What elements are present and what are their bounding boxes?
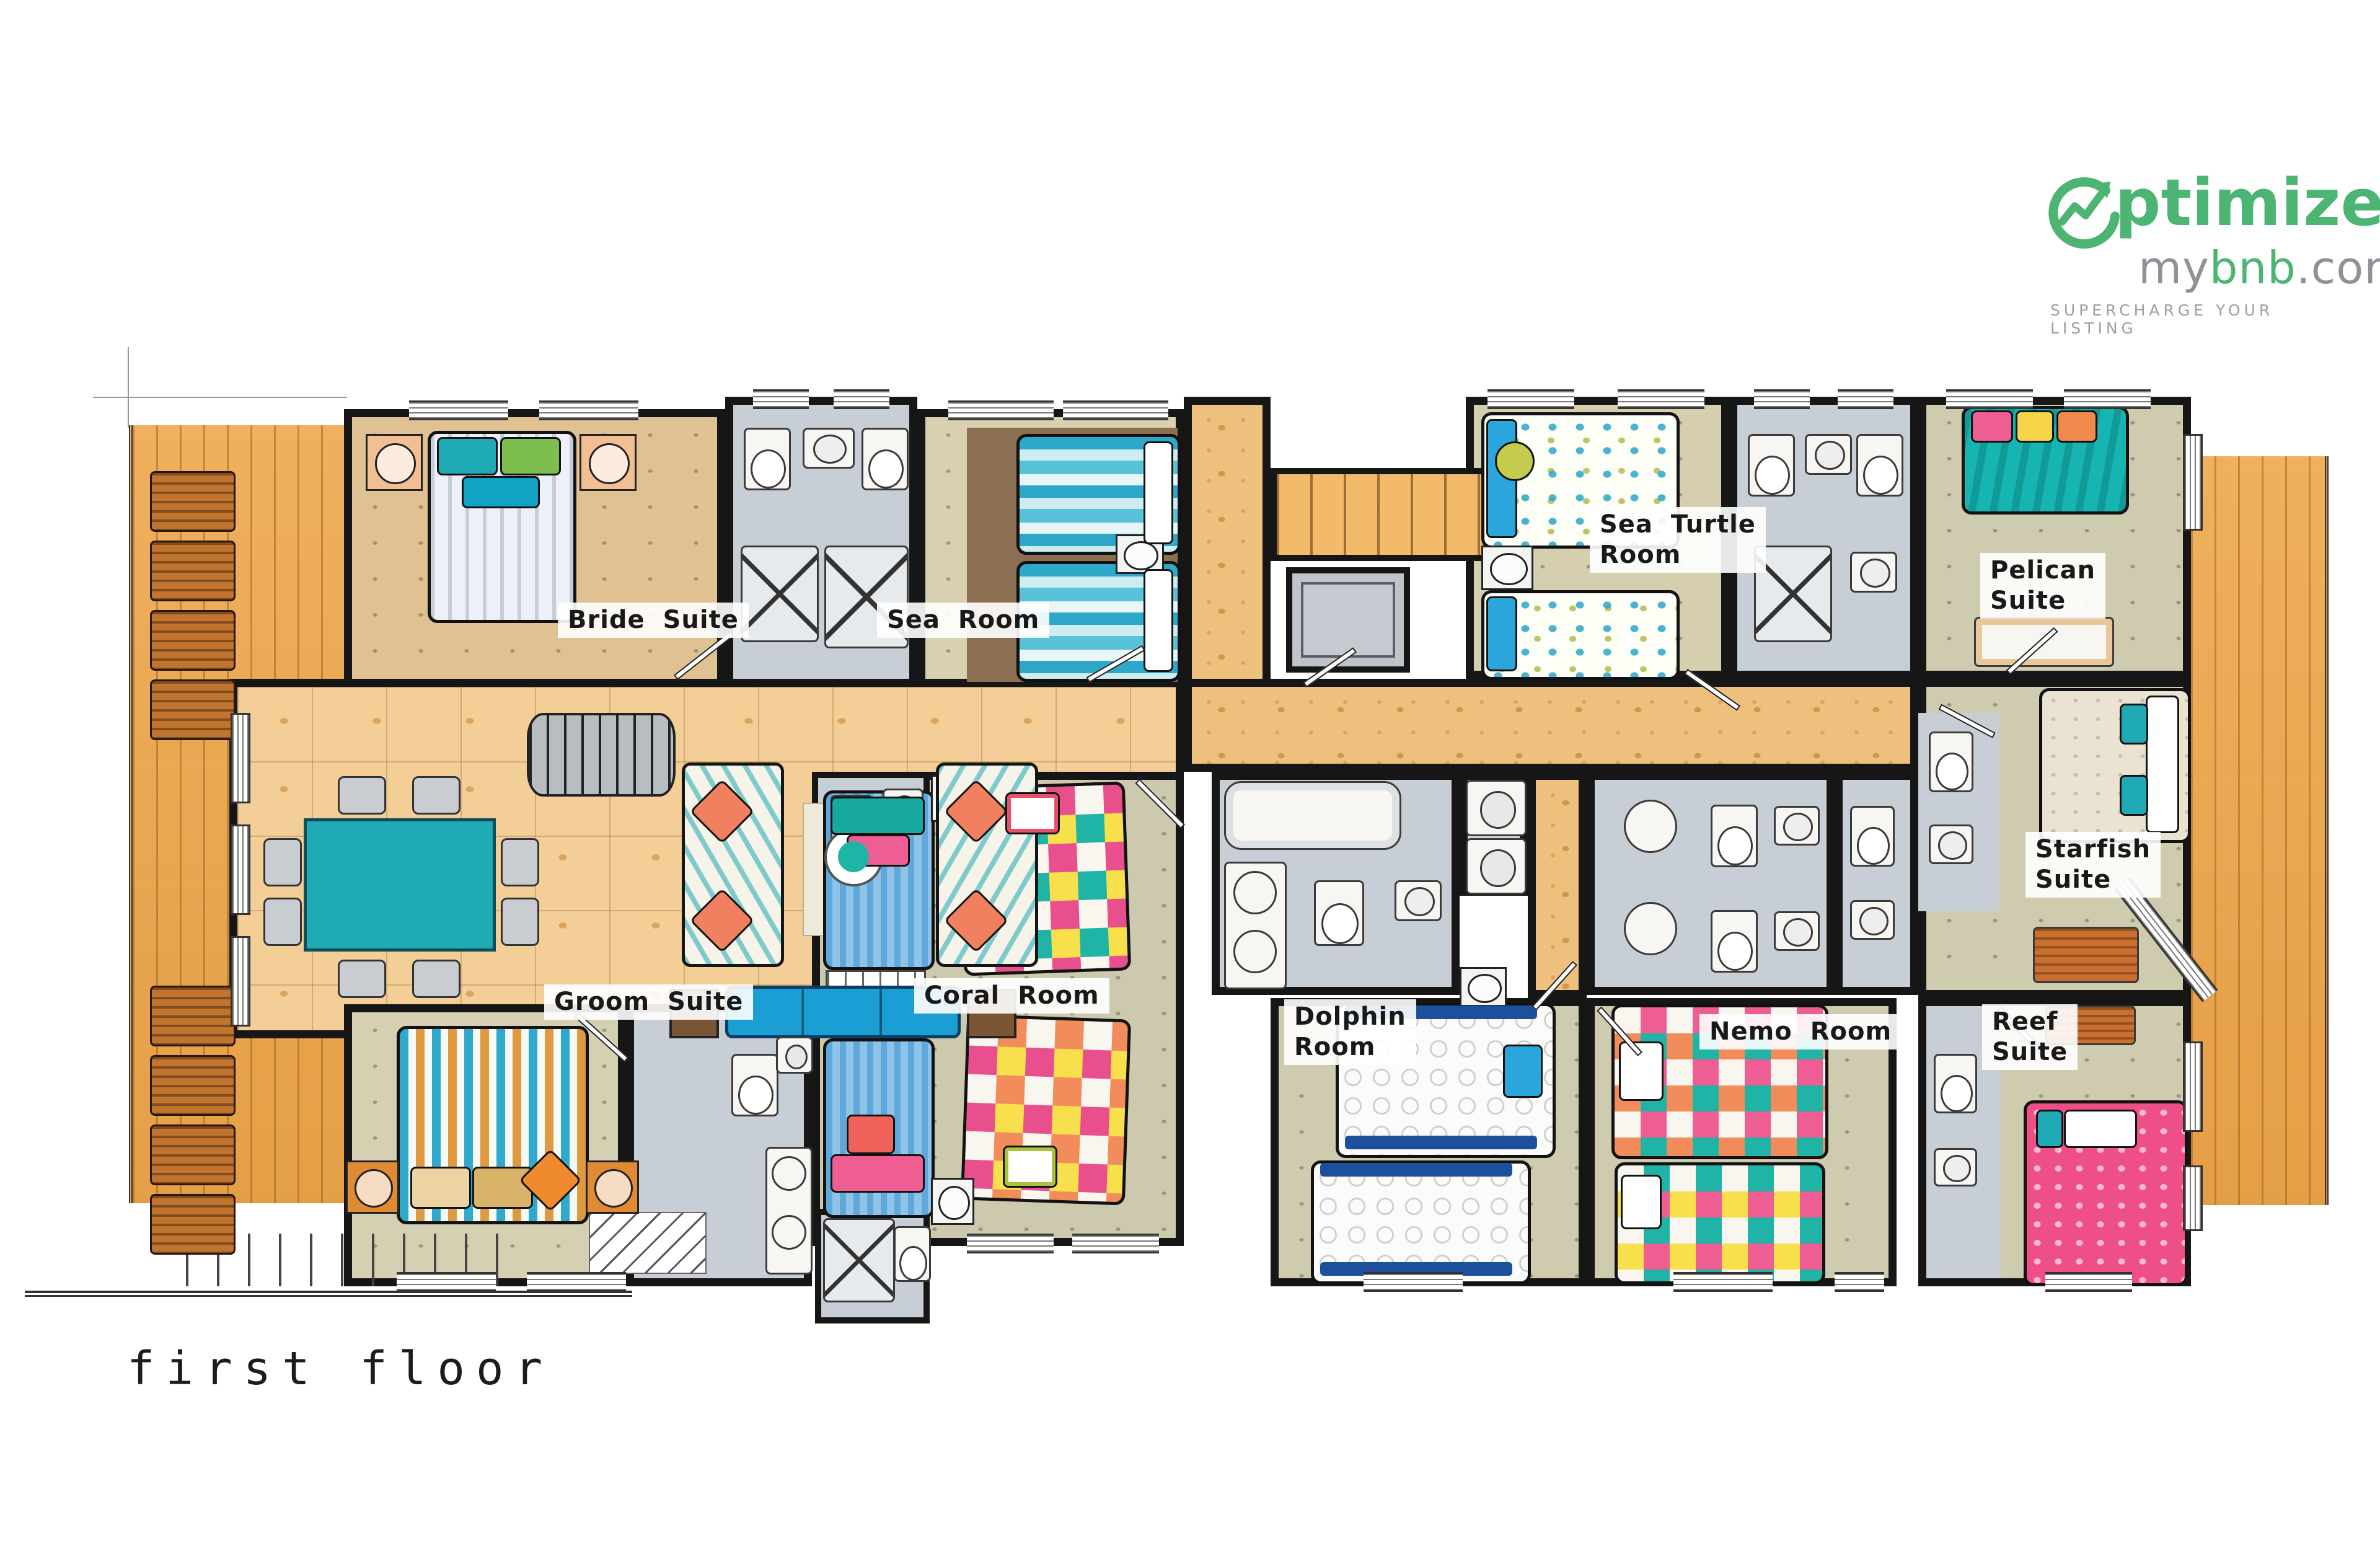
nightstand [366,434,423,491]
toilet [1934,1054,1977,1113]
toilet [862,428,909,490]
nightstand [346,1160,399,1214]
room-label-text: Sea Room [887,605,1039,635]
nightstand [586,1160,639,1214]
dining-chair [501,898,539,946]
dining-table [304,818,496,952]
logo-domain-bnb: bnb [2210,242,2296,294]
dining-chair [412,776,461,815]
sink [1774,911,1820,951]
sink [772,1156,806,1191]
entry-hall [1184,397,1271,688]
piano [527,713,676,797]
pillow [1503,1045,1543,1098]
sink [1805,434,1852,475]
room-label-text: Starfish [2035,834,2151,865]
room-label-text: Groom Suite [554,987,743,1017]
window [1487,389,1574,409]
page-title: first floor [127,1342,553,1395]
window [1364,1272,1463,1292]
dining-chair [338,776,386,815]
pillow [500,437,561,475]
dining-chair [412,960,461,998]
room-label-sea-turtle-room: Sea TurtleRoom [1590,507,1766,573]
pillow [1971,410,2013,443]
room-label-pelican-suite: PelicanSuite [1980,553,2105,619]
lounge-chair [150,1125,236,1185]
nightstand [1460,967,1507,1007]
drafting-line [128,347,129,428]
pillow [472,1167,533,1209]
sink [1774,806,1820,846]
plant [838,841,869,872]
window [2064,389,2151,409]
window [1754,389,1810,409]
toilet [731,1054,778,1116]
pillow [1144,441,1173,544]
room-label-text: Suite [1992,1037,2068,1067]
pillow [410,1167,471,1209]
pillow [831,797,925,835]
room-label-text: Coral Room [924,981,1100,1011]
sink [1395,880,1442,921]
nightstand [580,434,637,491]
room-label-coral-room: Coral Room [914,978,1109,1014]
window [1838,389,1893,409]
lounge-chair [150,1194,236,1255]
window [527,1272,626,1292]
pillow [847,1115,895,1154]
pillow [462,476,540,508]
pillow [437,437,498,475]
window [967,1234,1054,1253]
window [1063,400,1168,420]
drafting-line [93,397,347,398]
sink [1850,552,1897,593]
corridor-branch [1528,772,1587,998]
pillow [2120,775,2148,816]
washer-icon [1466,780,1527,836]
pillow [1486,596,1517,671]
room-label-text: Suite [2035,865,2151,895]
exterior-ramp [589,1212,707,1274]
window [231,824,250,915]
bathtub [1224,781,1401,850]
bolster [1345,1136,1537,1149]
shower [823,1218,895,1302]
nightstand [1481,546,1533,590]
logo-domain-text: mybnb.com [2138,242,2380,294]
right-deck [2191,456,2329,1205]
room-label-sea-room: Sea Room [877,603,1049,638]
toilet [1850,806,1895,867]
room-label-text: Sea Turtle [1600,510,1756,540]
window [1072,1234,1159,1253]
room-label-text: Pelican [1990,555,2096,586]
pillow [1003,1146,1057,1188]
dryer-icon [1466,838,1527,895]
room-label-bride-suite: Bride Suite [558,603,749,638]
room-label-text: Bride Suite [568,605,739,635]
window [753,389,809,409]
toilet [1856,434,1903,497]
window [2045,1272,2132,1292]
window [1946,389,2033,409]
room-label-dolphin-room: DolphinRoom [1284,999,1416,1065]
window [231,936,250,1027]
window [2183,1041,2203,1132]
lounge-chair [150,986,236,1046]
lounge-chair [150,679,236,740]
logo-brand-text: ptimize [2115,165,2380,241]
bathroom-core-c [1835,772,1918,995]
toilet [894,1226,931,1282]
toilet [1748,434,1795,497]
bench [2033,927,2139,983]
sink [1929,824,1973,864]
window [834,389,889,409]
pillow [1144,569,1173,672]
sink [1624,902,1677,955]
room-label-nemo-room: Nemo Room [1699,1014,1902,1049]
window [1835,1272,1884,1292]
dining-chair [263,898,302,946]
sink [1233,871,1277,914]
toilet [1314,880,1364,946]
room-label-text: Room [1600,540,1756,570]
room-label-text: Room [1294,1032,1406,1063]
sink [1934,1148,1977,1186]
window [1618,389,1704,409]
lounge-chair [150,610,236,671]
window [2183,434,2203,531]
window [409,400,508,420]
room-label-groom-suite: Groom Suite [544,984,753,1020]
corridor [1184,679,1918,772]
pillow [831,1154,925,1193]
window [2183,1165,2203,1231]
room-label-text: Reef [1992,1007,2068,1037]
dining-chair [338,960,386,998]
floor-plan: Bride Suite Sea Room Sea TurtleRoom Peli… [0,0,2380,1551]
lounge-chair [150,541,236,601]
pillow [2056,410,2097,443]
sink [772,1215,806,1250]
room-label-reef-suite: ReefSuite [1982,1004,2078,1070]
pillow [1005,792,1060,834]
pillow [2016,410,2054,443]
pillow [2036,1110,2063,1148]
room-label-text: Suite [1990,586,2096,616]
washer-icon [776,1036,813,1074]
window [1673,1272,1773,1292]
logo-tagline: SUPERCHARGE YOUR LISTING [2050,301,2337,337]
pillow [2064,1110,2137,1148]
room-label-text: Dolphin [1294,1002,1406,1032]
lounge-chair [150,1055,236,1116]
toilet [744,428,791,490]
nightstand [931,1178,974,1225]
window [539,400,638,420]
bolster [1320,1163,1512,1177]
dining-chair [501,838,539,886]
window [231,713,250,803]
sink [1624,800,1677,853]
window [948,400,1054,420]
logo-domain-com: .com [2296,242,2380,294]
shower [741,546,819,642]
room-label-text: Nemo Room [1709,1017,1892,1047]
lounge-chair [150,471,236,532]
room-label-starfish-suite: StarfishSuite [2025,832,2161,898]
pillow [2120,704,2148,745]
pillow [1621,1175,1662,1229]
pillow [2146,696,2179,833]
sink [803,428,855,469]
window [397,1272,496,1292]
sink [1850,900,1895,940]
sink [1233,930,1277,973]
dining-chair [263,838,302,886]
toilet [1711,910,1758,973]
toilet [1711,805,1758,867]
logo-chart-arrow-icon [2045,174,2123,251]
logo: ptimize mybnb.com SUPERCHARGE YOUR LISTI… [2045,172,2337,334]
logo-domain-my: my [2138,242,2210,294]
pillow [1495,441,1535,481]
toilet [1929,731,1973,792]
